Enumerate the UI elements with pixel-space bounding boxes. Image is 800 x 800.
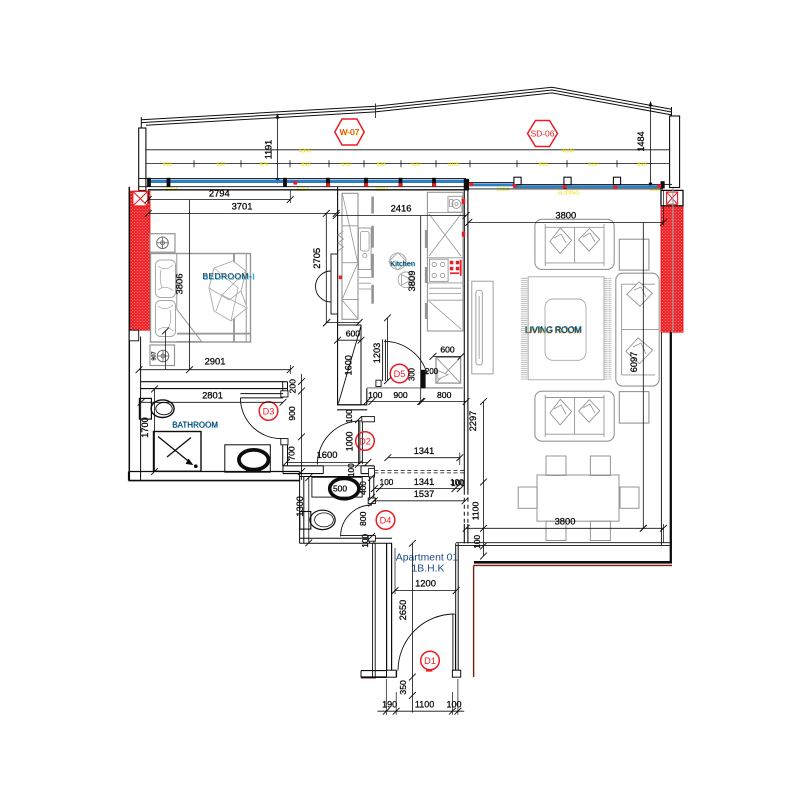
svg-text:4366: 4366 [299,148,311,154]
svg-text:Apartment 01: Apartment 01 [396,552,459,563]
svg-text:BATHROOM: BATHROOM [172,421,218,430]
svg-text:350: 350 [398,680,408,695]
svg-text:1341: 1341 [414,477,434,487]
svg-text:700: 700 [287,446,297,461]
svg-text:907: 907 [151,352,157,361]
svg-text:800: 800 [358,511,368,526]
svg-text:SLIDING: SLIDING [557,190,579,196]
svg-text:100: 100 [347,463,356,477]
svg-text:W-07: W-07 [339,127,359,137]
svg-text:500: 500 [333,484,347,494]
svg-text:2801: 2801 [202,389,223,400]
svg-text:1700: 1700 [140,417,150,437]
svg-text:800: 800 [437,390,452,400]
svg-text:2650: 2650 [398,600,408,620]
svg-text:1484: 1484 [636,131,646,151]
svg-text:2297: 2297 [468,411,478,431]
svg-text:893: 893 [162,162,171,168]
svg-text:2705: 2705 [311,248,322,269]
svg-text:3800: 3800 [555,515,576,526]
svg-text:100: 100 [361,534,370,548]
svg-text:1100: 1100 [471,502,481,521]
svg-text:100: 100 [451,479,465,488]
svg-text:893: 893 [637,162,646,168]
svg-text:1300: 1300 [295,496,305,516]
svg-text:900: 900 [287,406,297,421]
svg-text:SD-06: SD-06 [531,129,555,139]
svg-text:D5: D5 [394,369,406,379]
svg-text:893: 893 [301,162,310,168]
svg-text:1100: 1100 [415,699,434,709]
svg-text:200: 200 [287,379,297,394]
svg-text:1341: 1341 [414,446,434,456]
svg-text:100: 100 [368,390,383,400]
svg-text:900: 900 [393,390,408,400]
svg-text:600: 600 [346,328,361,338]
svg-text:400: 400 [359,481,368,495]
svg-text:100: 100 [345,409,354,423]
svg-text:1015: 1015 [447,162,459,168]
svg-text:LIVING ROOM: LIVING ROOM [525,325,581,335]
svg-text:610: 610 [588,162,597,168]
svg-text:2416: 2416 [391,202,412,213]
svg-text:1537: 1537 [414,489,434,499]
svg-text:2794: 2794 [209,187,230,198]
svg-text:100: 100 [473,535,482,549]
svg-text:893: 893 [376,162,385,168]
svg-text:Kitchen: Kitchen [390,259,415,268]
svg-text:D1: D1 [424,656,436,666]
svg-text:1191: 1191 [264,140,274,159]
svg-text:610: 610 [216,162,225,168]
svg-text:1203: 1203 [372,343,382,363]
svg-text:100: 100 [446,699,461,709]
svg-text:610: 610 [411,162,420,168]
svg-text:6097: 6097 [629,352,639,372]
svg-text:1000: 1000 [345,432,355,452]
svg-text:D2: D2 [359,437,371,447]
svg-text:4000: 4000 [562,148,574,154]
svg-text:BEDROOM-I: BEDROOM-I [202,271,254,281]
svg-text:190: 190 [382,699,397,709]
svg-text:3800: 3800 [555,209,576,220]
svg-text:D4: D4 [380,516,392,526]
svg-text:1B.H.K: 1B.H.K [412,564,445,575]
svg-text:610: 610 [341,162,350,168]
svg-text:876: 876 [259,162,268,168]
svg-text:1200: 1200 [415,578,436,589]
svg-text:3701: 3701 [232,200,253,211]
svg-text:200: 200 [425,367,439,376]
svg-text:600: 600 [440,344,455,354]
svg-text:1600: 1600 [343,355,353,375]
svg-text:893: 893 [538,162,547,168]
svg-text:2901: 2901 [205,355,226,366]
svg-text:D3: D3 [263,407,275,417]
svg-text:3809: 3809 [406,271,417,292]
svg-text:500A: 500A [496,187,509,193]
svg-text:3806: 3806 [173,274,184,295]
svg-text:300: 300 [408,367,417,381]
svg-text:1600: 1600 [317,449,338,460]
svg-text:100: 100 [380,478,394,487]
